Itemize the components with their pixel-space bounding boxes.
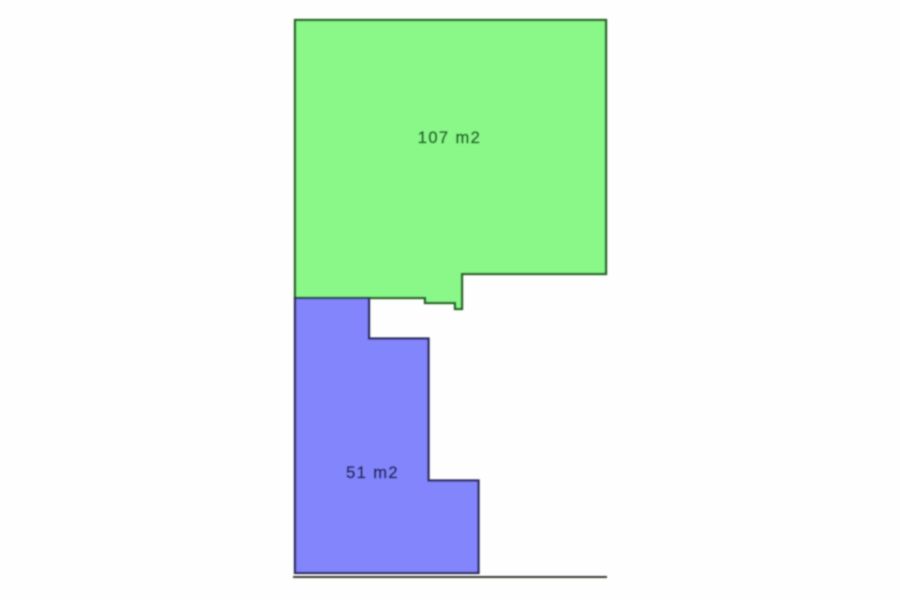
svg-text:51 m2: 51 m2 — [346, 464, 399, 482]
svg-text:107 m2: 107 m2 — [418, 129, 481, 147]
